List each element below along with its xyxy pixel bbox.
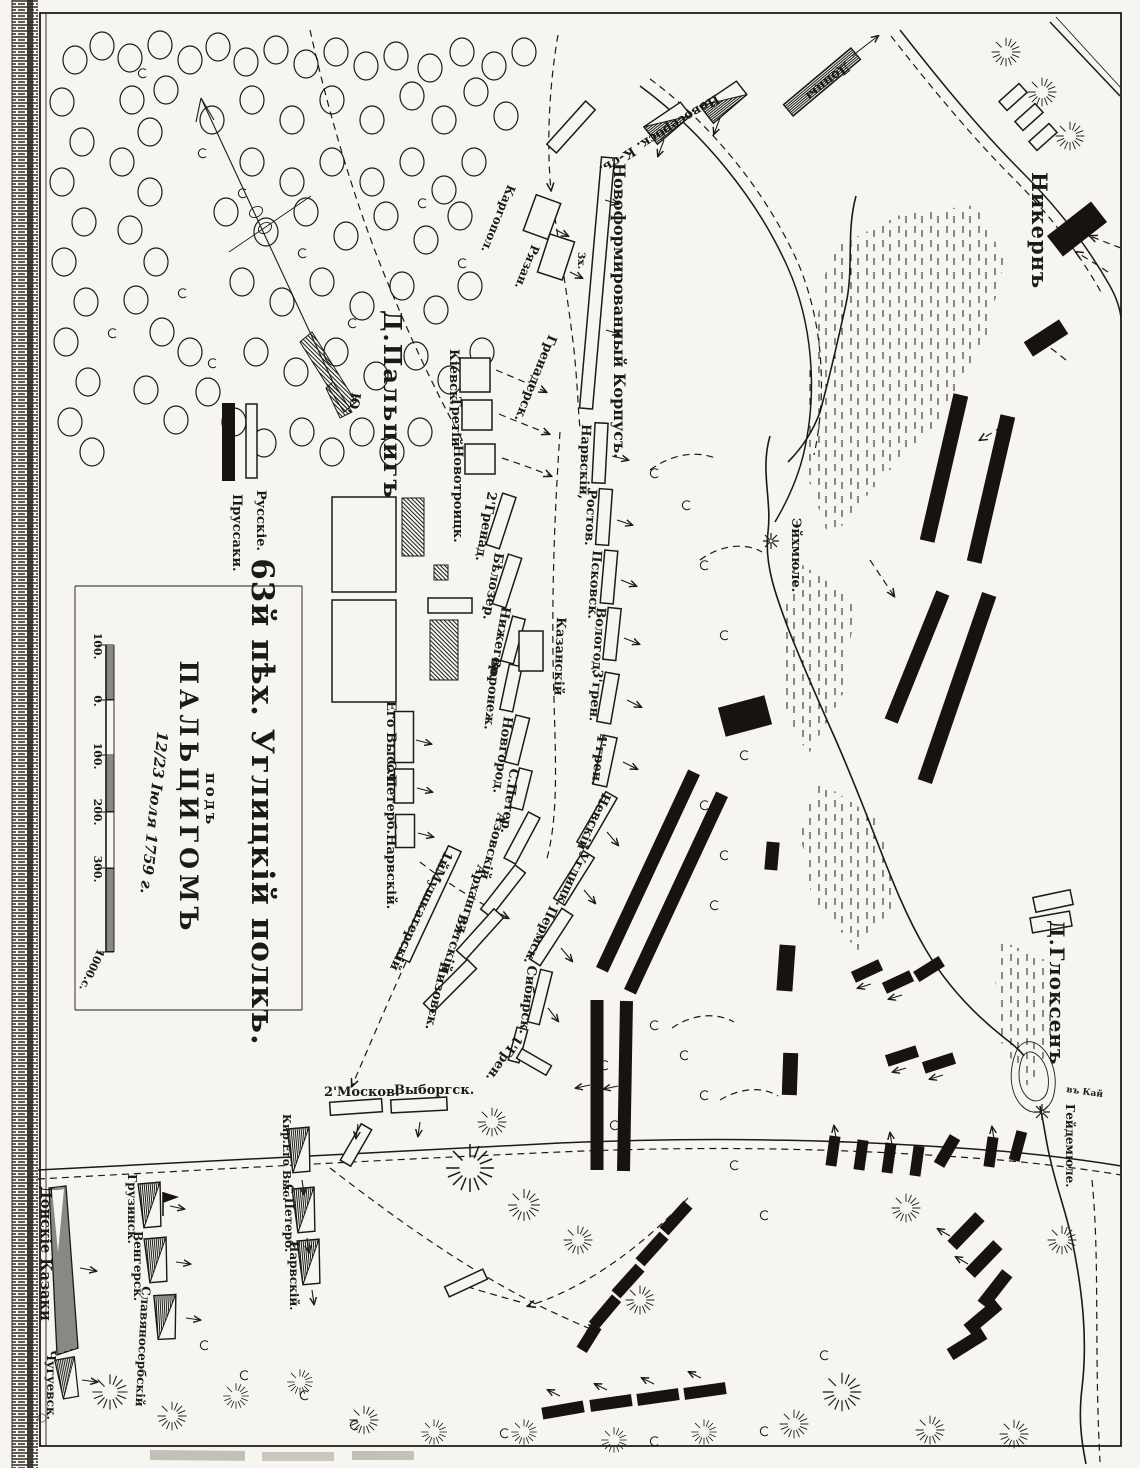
label-kazan: Казанскій — [550, 617, 568, 696]
legend-prussians-label: Пруссаки. — [229, 494, 244, 572]
place-gloksen-label: Д.Глоксенъ — [1045, 920, 1069, 1065]
title-battle: ПАЛЬЦИГОМЪ — [174, 660, 203, 935]
label-rostov: Ростов. — [581, 489, 599, 546]
place-nikern-label: Никернъ — [1027, 172, 1052, 289]
scale-tick-100: 100. — [91, 743, 104, 770]
map-canvas: Ю. Д.Пальцигъ Пруссаки. Русскіе. 100. 0.… — [0, 0, 1140, 1468]
scale-tick-0: 0. — [91, 695, 104, 706]
legend-russian-swatch — [246, 404, 257, 478]
label-don-kazaki: Донскіе Казаки — [37, 1186, 54, 1321]
title-regiment: 63й пѣх. Углицкій полкъ. — [244, 558, 280, 1046]
scale-tick-300: 300. — [91, 856, 104, 883]
label-vyborg: Выборгск. — [394, 1083, 474, 1098]
label-novotroitsk: Новотроицк. — [450, 445, 465, 543]
place-eichmuehle-label: Эйхмюле. — [788, 518, 803, 592]
title-preposition: подъ — [202, 773, 220, 828]
legend-russians-label: Русскіе. — [253, 490, 268, 551]
place-paltsig-label: Д.Пальцигъ — [378, 310, 407, 500]
scale-tick-200: 200. — [91, 799, 104, 826]
label-narv2: Нарвскій. — [287, 1241, 301, 1310]
label-novoform: Новоформированный Корпусъ. — [610, 163, 629, 459]
map-binding-edge — [12, 0, 38, 1468]
battle-map-paltsig: Ю. Д.Пальцигъ Пруссаки. Русскіе. 100. 0.… — [0, 0, 1140, 1468]
label-tretiy: Третій — [448, 397, 463, 447]
label-spb-narv: С.Петерб.Нарвскій. — [383, 760, 398, 909]
label-2moskov: 2'Москов. — [324, 1085, 400, 1100]
label-3x: 3х. — [575, 252, 587, 269]
label-chuguev: Чугуевск. — [44, 1350, 58, 1420]
legend-prussian-swatch — [222, 403, 235, 481]
scale-tick-100-left: 100. — [91, 633, 104, 660]
place-heidemuehle-label: Гейдемюле. — [1063, 1104, 1077, 1187]
